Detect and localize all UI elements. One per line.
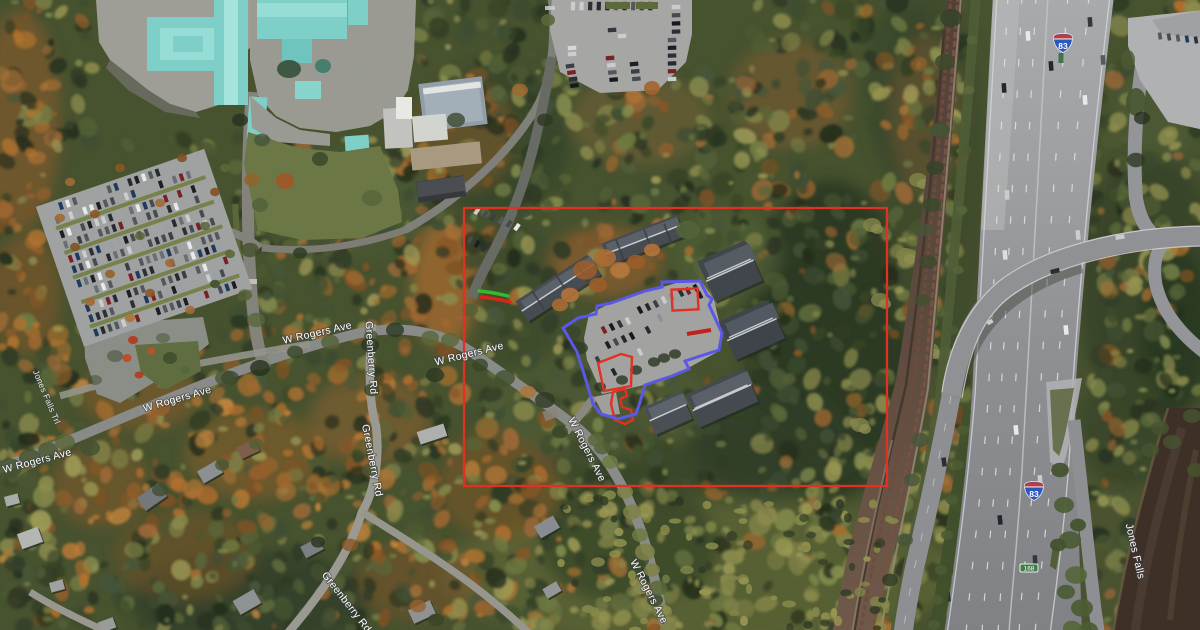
svg-text:83: 83 (1058, 41, 1068, 51)
svg-text:168: 168 (1024, 566, 1035, 573)
svg-text:83: 83 (1029, 489, 1039, 499)
